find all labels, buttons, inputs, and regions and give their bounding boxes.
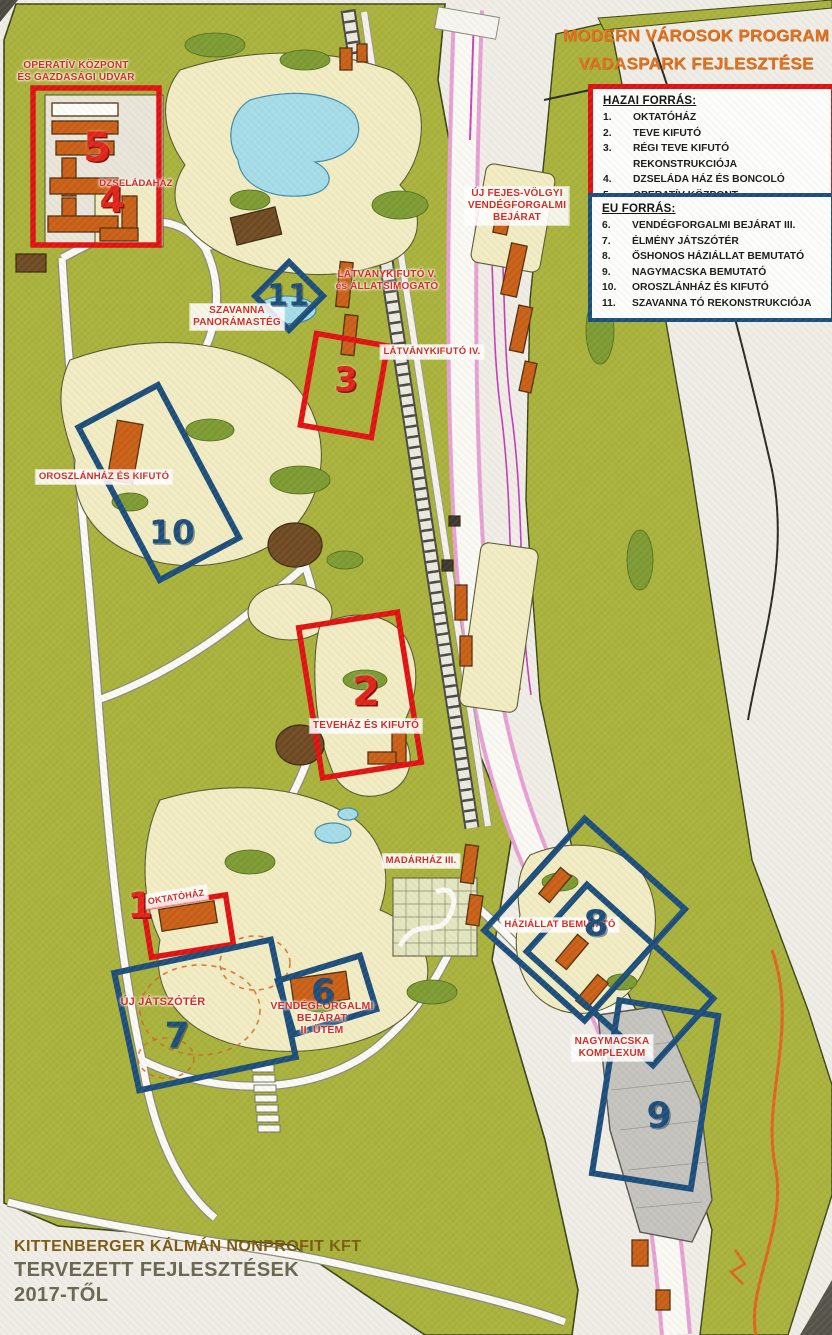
label-camel-house: TEVEHÁZ ÉS KIFUTÓ <box>310 719 422 733</box>
legend-item: 9.NAGYMACSKA BEMUTATÓ <box>602 265 823 281</box>
marker-10: 10 <box>149 513 195 552</box>
page-title: MODERN VÁROSOK PROGRAM VADASPARK FEJLESZ… <box>560 22 832 78</box>
legend-item: 4.DZSELÁDA HÁZ ÉS BONCOLÓ <box>603 172 823 188</box>
legend-eu-heading: EU FORRÁS: <box>602 203 823 215</box>
footer-titles: KITTENBERGER KÁLMÁN NONPROFIT KFT TERVEZ… <box>14 1238 361 1307</box>
legend-item: 1.OKTATÓHÁZ <box>603 110 823 126</box>
label-display-run-iv: LÁTVÁNYKIFUTÓ IV. <box>381 345 484 359</box>
marker-1: 1 <box>127 886 152 927</box>
marker-8: 8 <box>583 904 608 945</box>
footer-subtitle: TERVEZETT FEJLESZTÉSEK <box>14 1259 361 1282</box>
marker-9: 9 <box>646 1096 671 1137</box>
label-bird-house: MADÁRHÁZ III. <box>383 854 460 868</box>
marker-6: 6 <box>311 972 335 1012</box>
marker-11: 11 <box>267 279 309 314</box>
legend-domestic-heading: HAZAI FORRÁS: <box>603 95 823 107</box>
legend-item: 8.ŐSHONOS HÁZIÁLLAT BEMUTATÓ <box>602 249 823 265</box>
label-operations-center: OPERATÍV KÖZPONT ÉS GAZDASÁGI UDVAR <box>17 60 134 84</box>
label-new-entrance: ÚJ FEJES-VÖLGYI VENDÉGFORGALMI BEJÁRAT <box>465 187 569 225</box>
legend-item: 6.VENDÉGFORGALMI BEJÁRAT III. <box>602 218 823 234</box>
legend-item: 2.TEVE KIFUTÓ <box>603 126 823 142</box>
label-bigcat-complex: NAGYMACSKA KOMPLEXUM <box>572 1035 653 1061</box>
label-lion-house: OROSZLÁNHÁZ ÉS KIFUTÓ <box>36 470 172 484</box>
marker-7: 7 <box>164 1016 189 1057</box>
footer-year: 2017-TŐL <box>14 1284 361 1307</box>
legend-eu-funding: EU FORRÁS: 6.VENDÉGFORGALMI BEJÁRAT III.… <box>588 193 832 322</box>
legend-item: 7.ÉLMÉNY JÁTSZÓTÉR <box>602 234 823 250</box>
marker-4: 4 <box>99 180 124 221</box>
title-line-2: VADASPARK FEJLESZTÉSE <box>560 50 832 78</box>
footer-company: KITTENBERGER KÁLMÁN NONPROFIT KFT <box>14 1238 361 1256</box>
legend-item: 3.RÉGI TEVE KIFUTÓ REKONSTRUKCIÓJA <box>603 141 823 172</box>
site-plan-page: OPERATÍV KÖZPONT ÉS GAZDASÁGI UDVAR DZSE… <box>0 0 832 1335</box>
aviary-maze <box>393 878 477 956</box>
legend-item: 11.SZAVANNA TÓ REKONSTRUKCIÓJA <box>602 296 823 312</box>
legend-item: 10.OROSZLÁNHÁZ ÉS KIFUTÓ <box>602 280 823 296</box>
marker-5: 5 <box>83 125 111 171</box>
playground-pond <box>315 823 351 843</box>
title-line-1: MODERN VÁROSOK PROGRAM <box>560 22 832 50</box>
label-display-run-v: LÁTVÁNYKIFUTÓ V. és ÁLLATSIMOGATÓ <box>336 269 439 293</box>
label-new-playground: ÚJ JÁTSZÓTÉR <box>121 996 206 1008</box>
marker-3: 3 <box>334 360 358 400</box>
marker-2: 2 <box>352 669 380 715</box>
